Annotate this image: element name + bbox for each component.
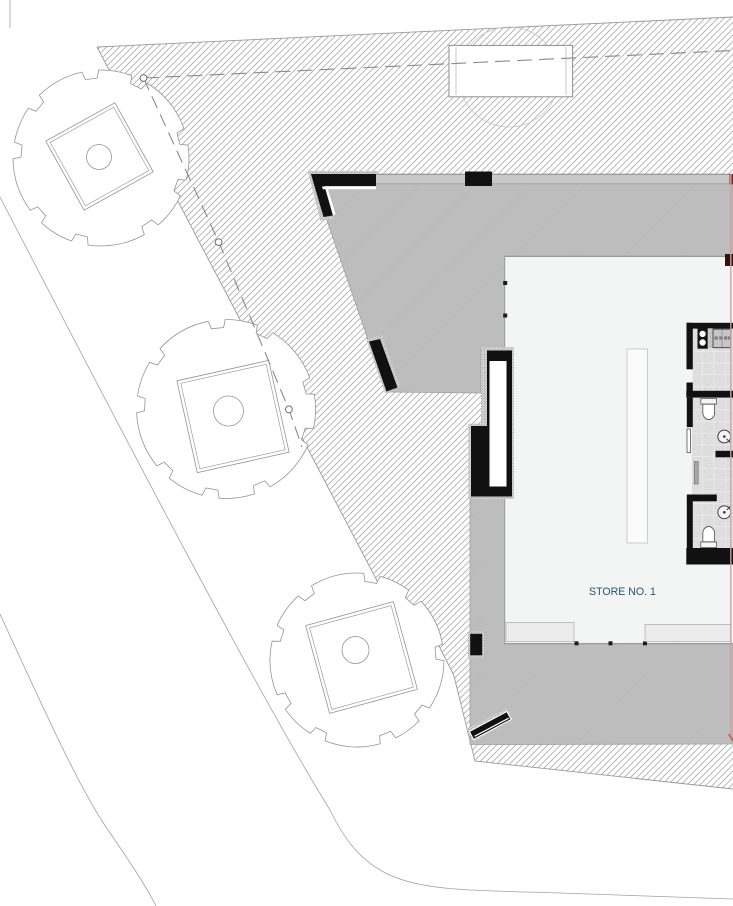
svg-text:STORE NO. 1: STORE NO. 1 — [589, 586, 656, 598]
